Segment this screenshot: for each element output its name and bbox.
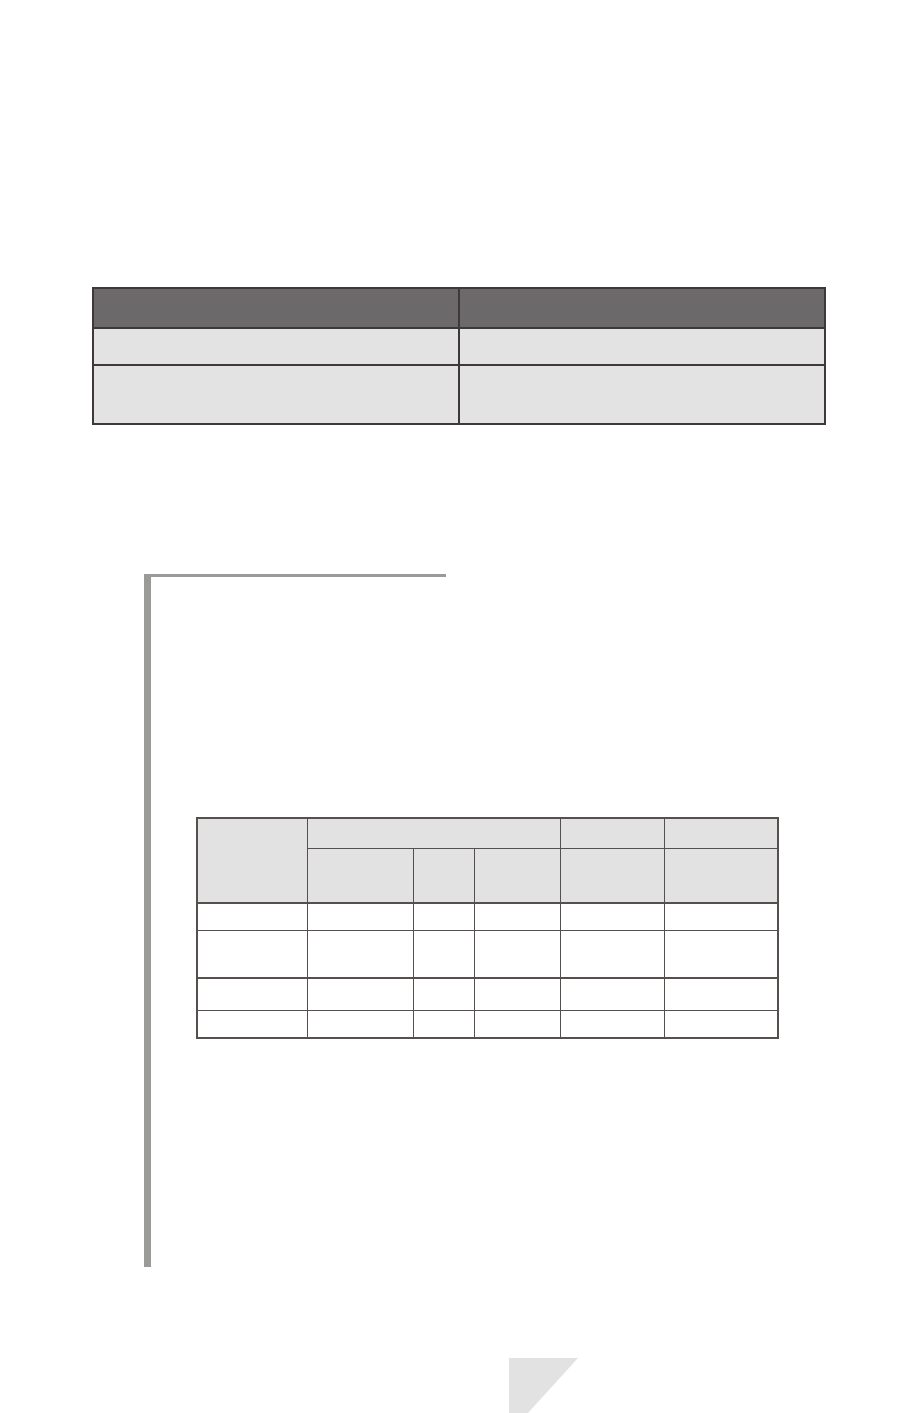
table2-cell (413, 1010, 474, 1038)
table2-corner-cell (197, 818, 307, 903)
table2-cell (560, 903, 664, 930)
table2-cell (560, 1010, 664, 1038)
table1-cell (459, 365, 825, 424)
section-rule-horizontal (144, 574, 446, 577)
table2-header-cell (560, 818, 664, 848)
table1-cell (93, 328, 459, 365)
table-header-row (93, 288, 825, 328)
table2-cell (474, 1010, 560, 1038)
table1-header-cell (459, 288, 825, 328)
table2-cell (413, 978, 474, 1010)
table2-subheader-cell (413, 848, 474, 903)
table1-cell (93, 365, 459, 424)
table2-cell (307, 930, 413, 978)
lower-data-table (196, 817, 779, 1039)
table2-cell (664, 930, 778, 978)
page-corner-triangle (509, 1358, 578, 1413)
top-info-table (92, 287, 826, 425)
table2-cell (474, 978, 560, 1010)
table2-cell (664, 1010, 778, 1038)
table-row (197, 903, 778, 930)
table2-subheader-cell (474, 848, 560, 903)
table-row (197, 1010, 778, 1038)
table1-cell (459, 328, 825, 365)
table2-cell (197, 930, 307, 978)
table2-cell (307, 1010, 413, 1038)
table2-cell (560, 930, 664, 978)
table2-cell (664, 978, 778, 1010)
section-rule-vertical (144, 574, 151, 1267)
table2-cell (413, 930, 474, 978)
table2-group-header-cell (307, 818, 560, 848)
table2-cell (307, 978, 413, 1010)
table2-cell (664, 903, 778, 930)
table-row (197, 978, 778, 1010)
table2-cell (413, 903, 474, 930)
table-header-row-1 (197, 818, 778, 848)
document-page (0, 0, 915, 1413)
table2-cell (560, 978, 664, 1010)
table2-header-cell (664, 818, 778, 848)
table2-cell (474, 903, 560, 930)
table2-subheader-cell (560, 848, 664, 903)
table-row (93, 328, 825, 365)
table2-cell (197, 903, 307, 930)
table2-subheader-cell (307, 848, 413, 903)
table1-header-cell (93, 288, 459, 328)
table-row (93, 365, 825, 424)
table2-cell (197, 978, 307, 1010)
table2-cell (197, 1010, 307, 1038)
table2-cell (474, 930, 560, 978)
table2-cell (307, 903, 413, 930)
table-row (197, 930, 778, 978)
table2-subheader-cell (664, 848, 778, 903)
